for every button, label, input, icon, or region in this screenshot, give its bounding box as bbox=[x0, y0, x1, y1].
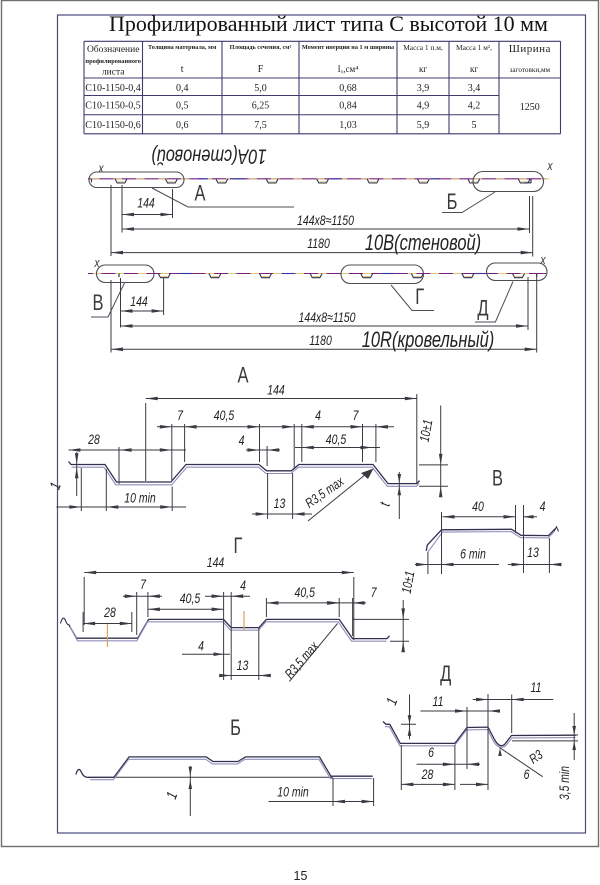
svg-text:15: 15 bbox=[294, 869, 308, 883]
svg-text:3,9: 3,9 bbox=[417, 83, 430, 94]
svg-text:7: 7 bbox=[140, 576, 147, 592]
svg-text:0,6: 0,6 bbox=[176, 120, 189, 131]
svg-text:3,4: 3,4 bbox=[468, 83, 481, 94]
svg-text:С10-1150-0,6: С10-1150-0,6 bbox=[85, 120, 140, 131]
svg-text:144х8≈1150: 144х8≈1150 bbox=[297, 212, 354, 228]
svg-text:28: 28 bbox=[421, 766, 434, 782]
svg-text:Б: Б bbox=[230, 716, 241, 741]
svg-text:кг: кг bbox=[419, 64, 427, 74]
svg-text:28: 28 bbox=[87, 431, 100, 447]
svg-text:6: 6 bbox=[428, 744, 434, 760]
svg-text:4: 4 bbox=[239, 432, 245, 448]
svg-text:10А(стеновой): 10А(стеновой) bbox=[151, 145, 267, 168]
svg-text:13: 13 bbox=[274, 495, 286, 511]
svg-text:листа: листа bbox=[102, 68, 125, 78]
svg-text:Масса 1 м²,: Масса 1 м², bbox=[456, 43, 492, 52]
svg-text:40,5: 40,5 bbox=[214, 407, 234, 423]
svg-text:F: F bbox=[258, 64, 264, 75]
svg-text:1180: 1180 bbox=[309, 332, 332, 348]
svg-text:10 min: 10 min bbox=[124, 490, 156, 506]
svg-text:С10-1150-0,5: С10-1150-0,5 bbox=[85, 101, 140, 112]
svg-text:4: 4 bbox=[240, 577, 246, 593]
svg-text:x: x bbox=[94, 256, 101, 270]
svg-text:40: 40 bbox=[472, 498, 484, 514]
svg-text:144: 144 bbox=[207, 554, 225, 570]
svg-text:Д: Д bbox=[440, 662, 451, 687]
svg-text:Площадь сечения, см²: Площадь сечения, см² bbox=[230, 44, 292, 51]
svg-text:11: 11 bbox=[531, 679, 542, 695]
svg-text:x: x bbox=[98, 161, 105, 175]
svg-text:x: x bbox=[540, 253, 547, 267]
svg-text:4: 4 bbox=[315, 407, 321, 423]
svg-text:профилированного: профилированного bbox=[85, 58, 141, 65]
svg-text:1,03: 1,03 bbox=[339, 120, 357, 131]
svg-text:Обозначение: Обозначение bbox=[87, 44, 140, 55]
svg-text:10R(кровельный): 10R(кровельный) bbox=[362, 328, 495, 353]
svg-text:7,5: 7,5 bbox=[254, 120, 267, 131]
svg-text:4,2: 4,2 bbox=[468, 101, 481, 112]
svg-text:Момент инерции на 1 м ширины: Момент инерции на 1 м ширины bbox=[302, 44, 394, 51]
svg-text:144: 144 bbox=[137, 195, 155, 211]
svg-text:С10-1150-0,4: С10-1150-0,4 bbox=[85, 83, 140, 94]
svg-text:t: t bbox=[181, 64, 184, 75]
svg-text:13: 13 bbox=[237, 657, 249, 673]
svg-text:Г: Г bbox=[415, 285, 424, 310]
svg-text:0,5: 0,5 bbox=[176, 101, 189, 112]
svg-text:10В(стеновой): 10В(стеновой) bbox=[365, 231, 481, 256]
svg-text:5,0: 5,0 bbox=[254, 83, 267, 94]
svg-text:40,5: 40,5 bbox=[294, 584, 314, 600]
svg-text:10 min: 10 min bbox=[277, 784, 309, 800]
svg-text:5,9: 5,9 bbox=[417, 120, 430, 131]
svg-text:13: 13 bbox=[527, 544, 539, 560]
svg-text:Профилированный лист типа С вы: Профилированный лист типа С высотой 10 м… bbox=[109, 11, 548, 36]
svg-text:7: 7 bbox=[177, 407, 184, 423]
svg-text:144: 144 bbox=[267, 382, 285, 398]
svg-text:Б: Б bbox=[447, 190, 458, 215]
svg-text:6,25: 6,25 bbox=[252, 101, 270, 112]
svg-text:144: 144 bbox=[130, 293, 148, 309]
svg-text:40,5: 40,5 bbox=[180, 590, 200, 606]
svg-text:1250: 1250 bbox=[520, 102, 540, 113]
svg-text:кг: кг bbox=[470, 64, 478, 74]
svg-text:1180: 1180 bbox=[307, 235, 330, 251]
svg-text:Iₓ,см⁴: Iₓ,см⁴ bbox=[338, 64, 359, 74]
svg-text:6 min: 6 min bbox=[460, 546, 486, 562]
svg-text:0,4: 0,4 bbox=[176, 83, 189, 94]
svg-text:заготовки,мм: заготовки,мм bbox=[510, 66, 551, 74]
svg-text:7: 7 bbox=[371, 584, 378, 600]
svg-text:28: 28 bbox=[103, 604, 116, 620]
svg-text:Масса 1 п.м,: Масса 1 п.м, bbox=[403, 43, 443, 52]
svg-text:Д: Д bbox=[477, 296, 488, 321]
svg-text:А: А bbox=[237, 363, 248, 388]
svg-text:5: 5 bbox=[472, 120, 477, 131]
svg-text:11: 11 bbox=[433, 693, 444, 709]
svg-text:Ширина: Ширина bbox=[509, 43, 551, 55]
svg-text:А: А bbox=[194, 181, 205, 206]
svg-text:4: 4 bbox=[540, 498, 546, 514]
svg-text:0,84: 0,84 bbox=[339, 101, 357, 112]
svg-text:0,68: 0,68 bbox=[339, 83, 357, 94]
svg-text:7: 7 bbox=[353, 407, 360, 423]
svg-text:Г: Г bbox=[234, 534, 243, 559]
svg-text:Толщина материала, мм: Толщина материала, мм bbox=[148, 44, 217, 51]
svg-text:144х8≈1150: 144х8≈1150 bbox=[299, 309, 356, 325]
svg-text:6: 6 bbox=[524, 766, 530, 782]
svg-text:3,5 min: 3,5 min bbox=[557, 766, 573, 800]
svg-text:4,9: 4,9 bbox=[417, 101, 430, 112]
svg-text:40,5: 40,5 bbox=[326, 431, 346, 447]
svg-text:4: 4 bbox=[198, 638, 204, 654]
svg-text:В: В bbox=[492, 466, 503, 491]
svg-text:x: x bbox=[547, 159, 554, 173]
svg-text:В: В bbox=[92, 291, 103, 316]
